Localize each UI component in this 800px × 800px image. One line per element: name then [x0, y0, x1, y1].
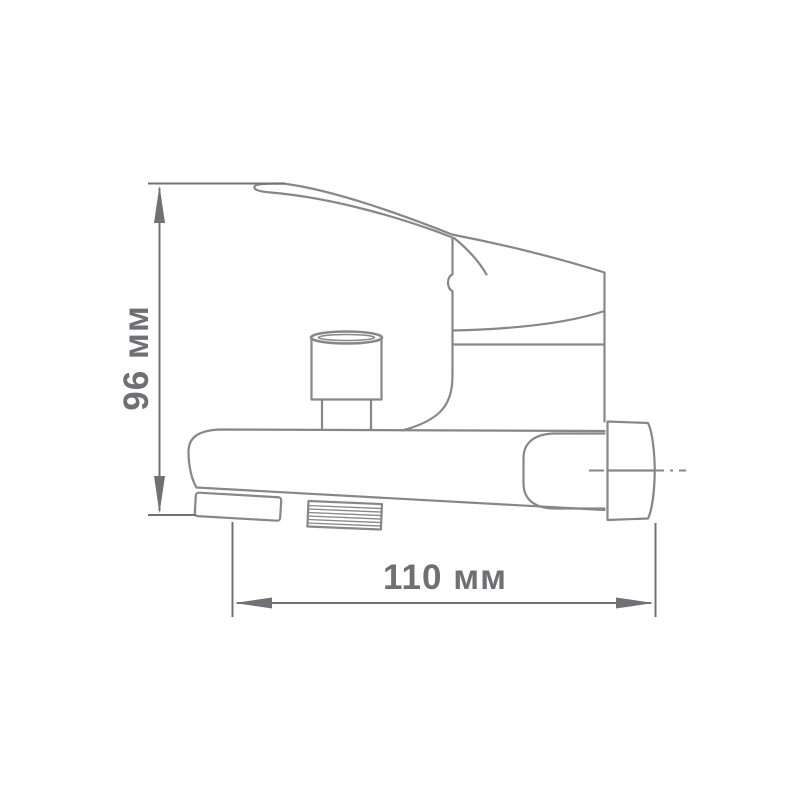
arrow-left-icon [235, 598, 273, 609]
diverter-knob [311, 332, 382, 431]
knob-sides [312, 340, 382, 400]
dimensions [148, 184, 656, 618]
width-dimension-label: 110 мм [383, 558, 507, 598]
knob-rim-outer [311, 332, 382, 344]
height-dimension-label: 96 мм [117, 305, 157, 410]
thread-hatching [308, 505, 382, 526]
handle-inner-curve [454, 238, 487, 275]
height-dimension [148, 184, 285, 516]
product-dimension-diagram: 96 мм 110 мм [0, 0, 800, 800]
faucet-drawing [189, 184, 687, 530]
spout-barrel [189, 430, 605, 511]
spout-tip [195, 493, 282, 521]
arrow-up-icon [154, 186, 165, 224]
handle-lever [254, 184, 604, 331]
shower-outlet-thread [307, 501, 382, 530]
knob-neck [322, 400, 371, 430]
cartridge-ring [453, 331, 605, 345]
arrow-right-icon [616, 598, 654, 609]
arrow-down-icon [154, 476, 165, 514]
faucet-body [402, 345, 453, 431]
knob-rim-inner [319, 335, 375, 341]
